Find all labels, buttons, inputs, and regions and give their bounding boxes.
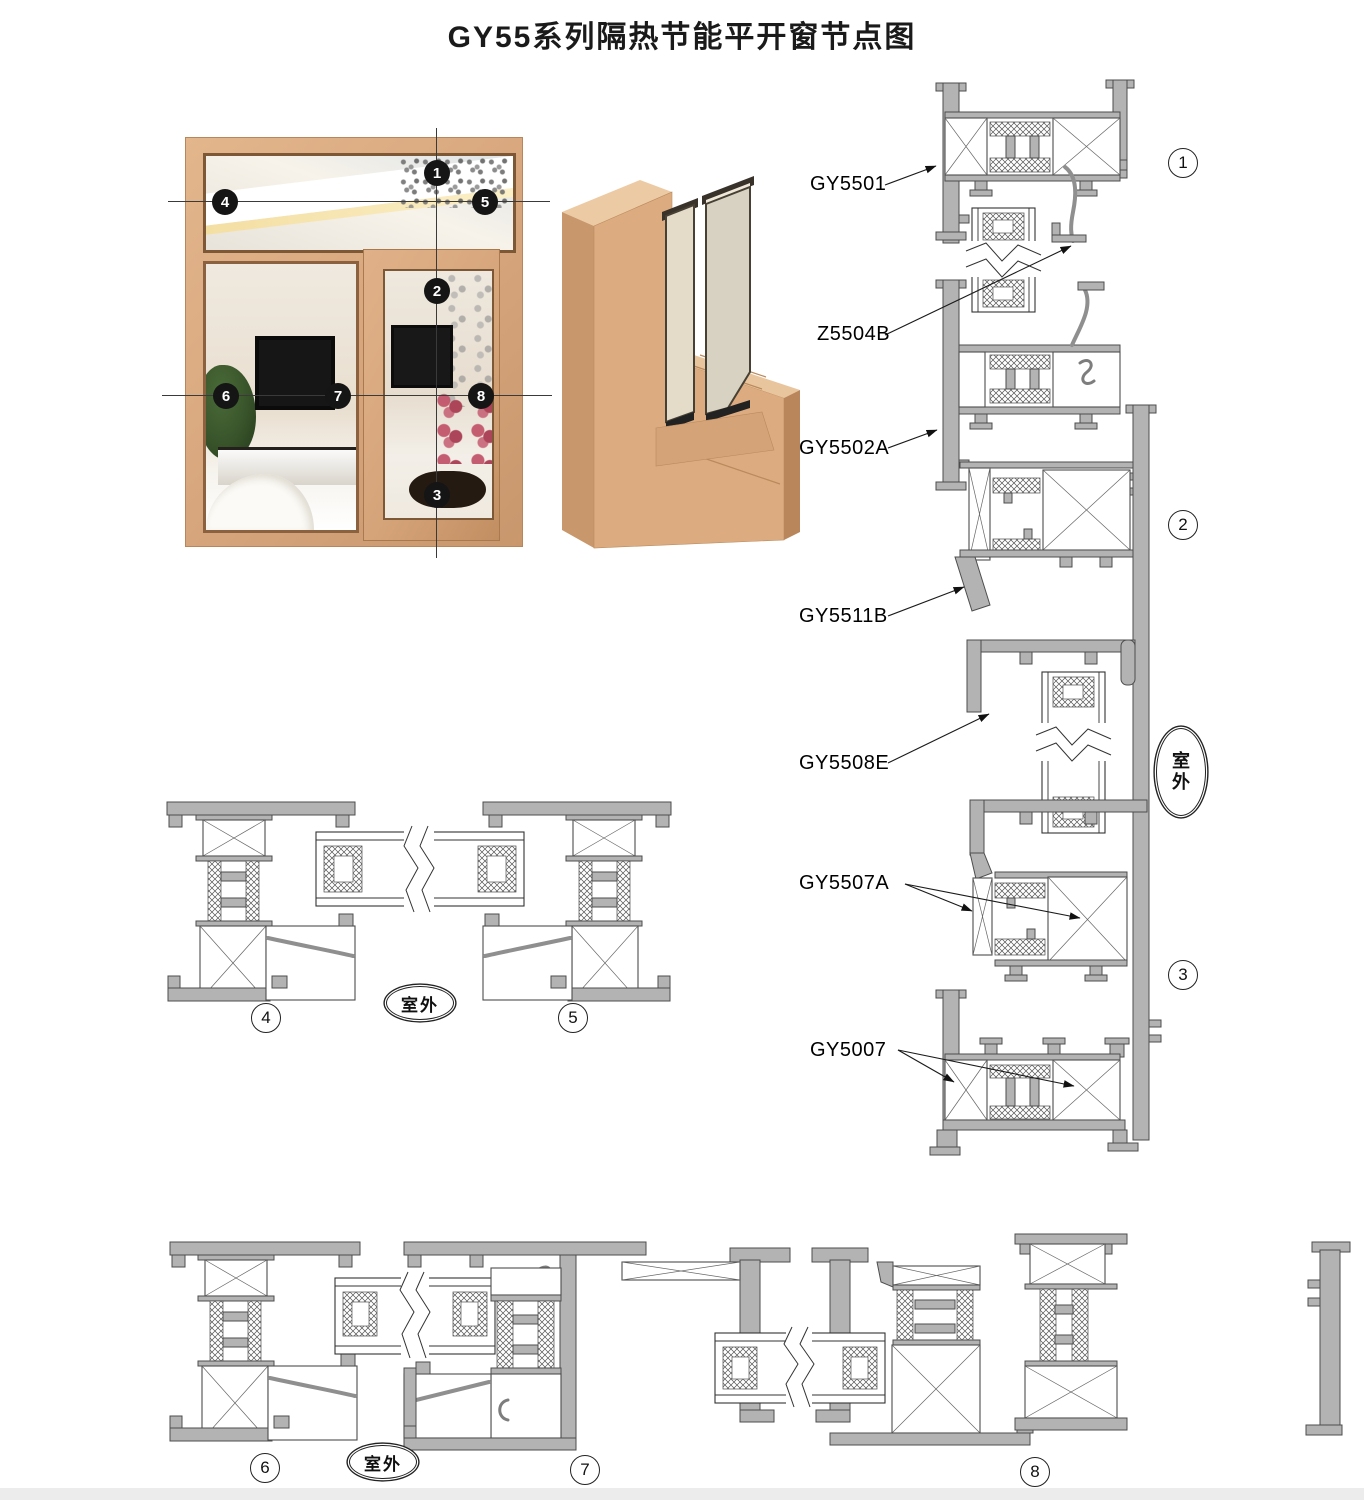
section-number-3: 3 [1168, 960, 1198, 990]
photo-marker-1: 1 [424, 160, 450, 186]
outdoor-label-mid: 室外 [386, 986, 454, 1020]
section-drawing-4-5 [140, 780, 710, 1070]
glazing-unit-1 [966, 208, 1041, 312]
section-number-8: 8 [1020, 1457, 1050, 1487]
bottom-strip [0, 1488, 1364, 1500]
part-label-gy5507a: GY5507A [799, 872, 889, 895]
gy5007-drawing [930, 990, 1138, 1155]
photo-marker-4: 4 [212, 189, 238, 215]
outdoor-label-bottom: 室外 [349, 1445, 417, 1479]
photo-marker-8: 8 [468, 383, 494, 409]
photo-marker-6: 6 [213, 383, 239, 409]
assembly-8 [830, 1234, 1350, 1445]
photo-marker-5: 5 [472, 189, 498, 215]
part-label-gy5502a: GY5502A [799, 437, 889, 460]
section-number-7: 7 [570, 1455, 600, 1485]
part-label-gy5511b: GY5511B [799, 605, 888, 628]
page-title: GY55系列隔热节能平开窗节点图 [0, 12, 1364, 56]
part-label-gy5007: GY5007 [810, 1039, 886, 1062]
section-number-4: 4 [251, 1003, 281, 1033]
section-number-5: 5 [558, 1003, 588, 1033]
tv-screen-2 [391, 325, 453, 388]
section-drawings-right-column [780, 75, 1270, 1265]
glazing-unit-mid [316, 826, 524, 912]
glazing-unit-bottom-1 [335, 1272, 495, 1358]
section-number-2: 2 [1168, 510, 1198, 540]
photo-marker-3: 3 [424, 482, 450, 508]
photo-marker-7: 7 [325, 383, 351, 409]
part-label-z5504b: Z5504B [817, 323, 890, 346]
glazing-unit-bottom-2 [715, 1327, 885, 1407]
assembly-6 [170, 1242, 360, 1441]
section-drawing-6-7-8 [140, 1220, 1364, 1500]
profile-3d-render [548, 150, 813, 575]
document-page: GY55系列隔热节能平开窗节点图 1 2 3 4 5 6 7 8 [0, 0, 1364, 1500]
photo-marker-2: 2 [424, 278, 450, 304]
section-number-1: 1 [1168, 148, 1198, 178]
part-label-gy5501: GY5501 [810, 173, 886, 196]
part-label-gy5508e: GY5508E [799, 752, 889, 775]
outdoor-label-right: 室外 [1156, 728, 1206, 816]
transom-pane [203, 153, 516, 253]
tv-screen [255, 336, 335, 411]
plant [203, 365, 256, 460]
section-number-6: 6 [250, 1453, 280, 1483]
